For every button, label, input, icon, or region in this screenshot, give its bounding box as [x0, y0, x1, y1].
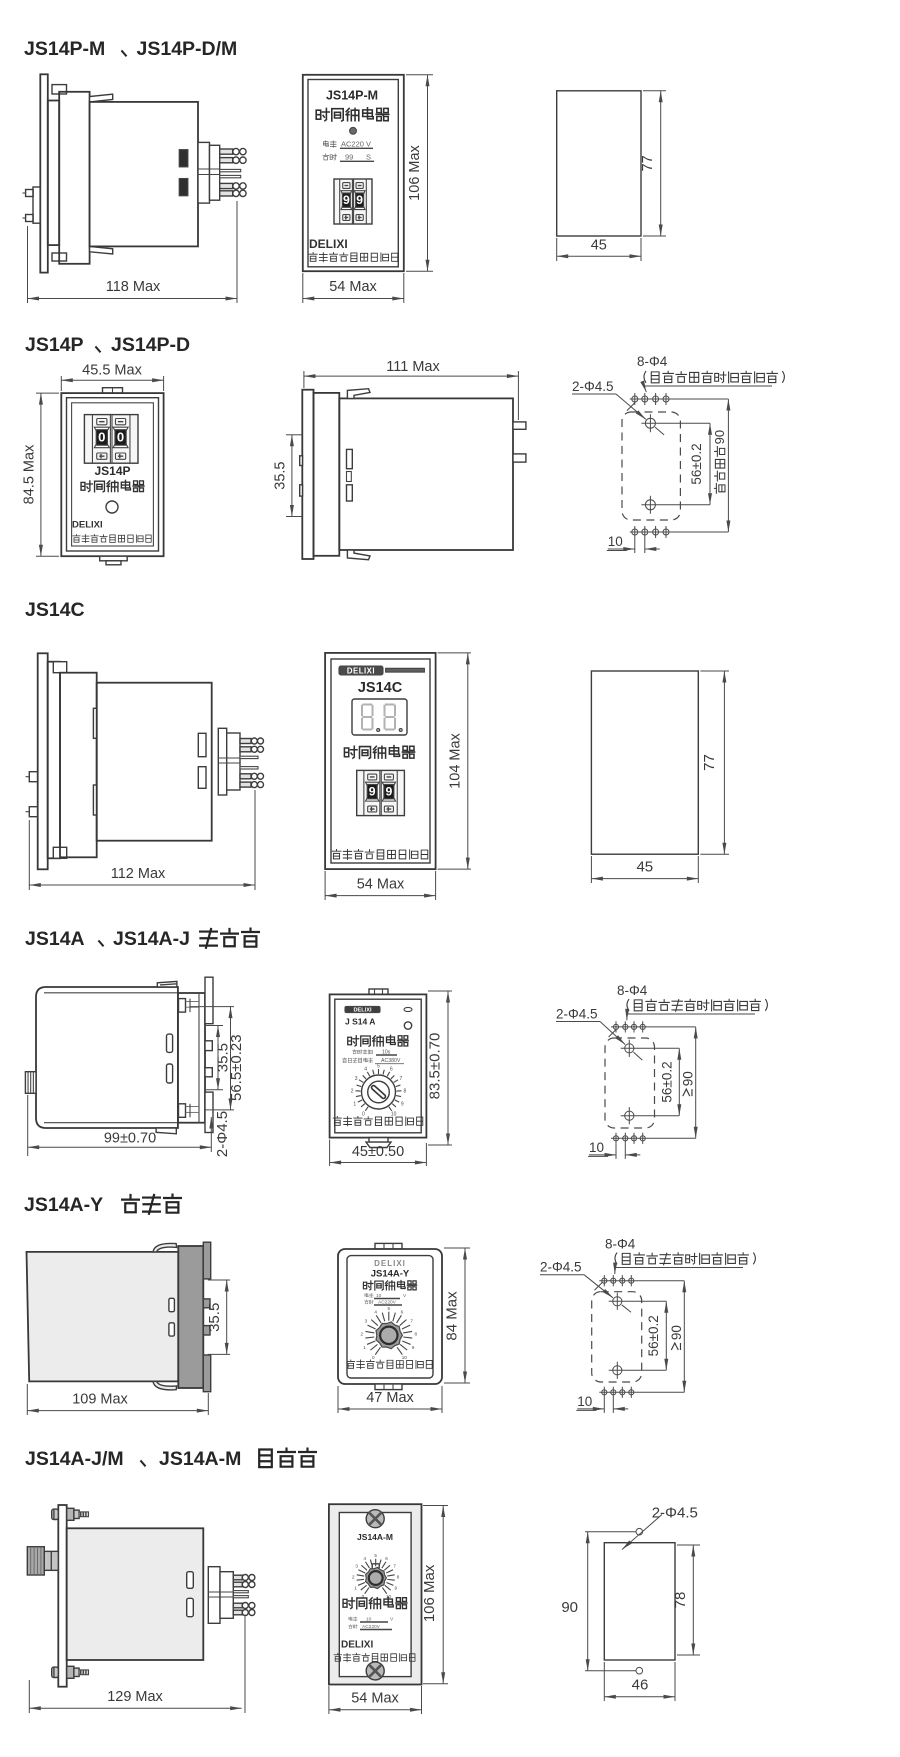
svg-text:8: 8: [403, 1088, 406, 1094]
svg-text:JS14P-D: JS14P-D: [111, 334, 190, 356]
svg-text:9: 9: [395, 1585, 398, 1590]
svg-text:DELIXI: DELIXI: [374, 1259, 406, 1268]
svg-text:6: 6: [401, 1309, 404, 1314]
svg-text:90: 90: [712, 430, 727, 444]
svg-text:10: 10: [589, 1140, 604, 1155]
svg-text:9: 9: [412, 1345, 415, 1350]
svg-text:4: 4: [374, 1309, 377, 1314]
svg-text:9: 9: [343, 193, 350, 207]
svg-text:3: 3: [365, 1319, 368, 1324]
svg-text:AC380V: AC380V: [381, 1058, 401, 1064]
svg-text:84.5 Max: 84.5 Max: [22, 444, 38, 504]
svg-text:2-Φ4.5: 2-Φ4.5: [214, 1111, 231, 1157]
svg-text:J S14 A: J S14 A: [345, 1017, 375, 1027]
svg-text:8: 8: [397, 1574, 400, 1579]
svg-text:8-Φ4: 8-Φ4: [617, 983, 648, 998]
svg-text:56±0.2: 56±0.2: [689, 443, 704, 484]
svg-text:2-Φ4.5: 2-Φ4.5: [556, 1007, 598, 1022]
svg-text:JS14A-M: JS14A-M: [357, 1532, 393, 1542]
svg-text:45.5 Max: 45.5 Max: [82, 363, 142, 379]
svg-text:47 Max: 47 Max: [366, 1390, 414, 1406]
svg-text:104 Max: 104 Max: [448, 732, 464, 788]
svg-text:35.5: 35.5: [206, 1303, 223, 1332]
svg-text:8: 8: [414, 1332, 417, 1337]
svg-text:5: 5: [388, 1306, 391, 1311]
svg-text:2-Φ4.5: 2-Φ4.5: [540, 1260, 582, 1275]
svg-text:DELIXI: DELIXI: [309, 237, 348, 251]
svg-text:129 Max: 129 Max: [107, 1689, 163, 1705]
svg-text:2: 2: [361, 1332, 364, 1337]
svg-text:JS14A-J: JS14A-J: [113, 928, 190, 950]
svg-text:JS14P-M: JS14P-M: [24, 38, 105, 60]
svg-text:0: 0: [98, 430, 105, 445]
svg-text:2: 2: [352, 1574, 355, 1579]
svg-text:56.5±0.23: 56.5±0.23: [228, 1034, 245, 1101]
svg-text:0: 0: [362, 1111, 365, 1117]
svg-text:1: 1: [363, 1345, 366, 1350]
svg-text:84 Max: 84 Max: [444, 1291, 461, 1341]
svg-text:DELIXI: DELIXI: [341, 1640, 373, 1651]
svg-text:77: 77: [701, 754, 718, 771]
svg-text:3: 3: [355, 1564, 358, 1569]
svg-text:106 Max: 106 Max: [407, 144, 423, 200]
svg-text:9: 9: [356, 193, 363, 207]
svg-text:JS14A: JS14A: [25, 928, 85, 950]
svg-text:DELIXI: DELIXI: [72, 520, 103, 531]
svg-text:6: 6: [385, 1556, 388, 1561]
svg-text:AC220 V: AC220 V: [341, 140, 371, 149]
svg-text:JS14P-M: JS14P-M: [326, 89, 378, 103]
svg-text:DELIXI: DELIXI: [353, 1008, 371, 1014]
svg-text:1: 1: [354, 1585, 357, 1590]
svg-text:10: 10: [608, 534, 623, 549]
svg-text:2: 2: [351, 1088, 354, 1094]
svg-text:S: S: [366, 153, 371, 162]
svg-text:0: 0: [372, 1355, 375, 1360]
svg-text:90: 90: [681, 1071, 696, 1086]
svg-text:46: 46: [632, 1677, 649, 1694]
svg-text:54 Max: 54 Max: [329, 279, 377, 295]
svg-text:112 Max: 112 Max: [111, 866, 166, 882]
svg-text:56±0.2: 56±0.2: [646, 1315, 661, 1356]
svg-text:99: 99: [345, 153, 353, 162]
svg-text:10: 10: [391, 1111, 397, 1117]
svg-text:7: 7: [410, 1319, 413, 1324]
svg-text:45: 45: [591, 238, 607, 254]
svg-text:5: 5: [377, 1063, 380, 1069]
svg-text:9: 9: [369, 784, 376, 798]
svg-text:JS14P: JS14P: [25, 334, 84, 356]
svg-text:3: 3: [355, 1076, 358, 1082]
svg-text:6: 6: [390, 1067, 393, 1073]
svg-text:JS14A-Y: JS14A-Y: [371, 1269, 410, 1280]
svg-text:56±0.2: 56±0.2: [659, 1061, 674, 1102]
svg-text:54 Max: 54 Max: [357, 877, 405, 893]
svg-text:118 Max: 118 Max: [106, 279, 161, 295]
svg-text:90: 90: [669, 1325, 684, 1340]
svg-text:9: 9: [386, 784, 393, 798]
svg-text:54 Max: 54 Max: [351, 1690, 399, 1706]
svg-text:106 Max: 106 Max: [421, 1564, 438, 1622]
svg-text:JS14P-D/M: JS14P-D/M: [137, 38, 238, 60]
svg-text:78: 78: [672, 1592, 689, 1609]
svg-text:9: 9: [401, 1101, 404, 1107]
svg-text:JS14A-J/M: JS14A-J/M: [25, 1448, 124, 1470]
svg-text:4: 4: [364, 1556, 367, 1561]
svg-text:2-Φ4.5: 2-Φ4.5: [572, 379, 614, 394]
svg-text:99±0.70: 99±0.70: [104, 1130, 156, 1146]
svg-text:4: 4: [364, 1067, 367, 1073]
svg-text:JS14P: JS14P: [94, 464, 130, 478]
svg-text:7: 7: [399, 1076, 402, 1082]
svg-text:10: 10: [402, 1355, 408, 1360]
svg-text:109 Max: 109 Max: [72, 1392, 128, 1408]
svg-text:1: 1: [353, 1101, 356, 1107]
svg-text:8-Φ4: 8-Φ4: [605, 1237, 636, 1252]
svg-text:DELIXI: DELIXI: [347, 667, 375, 676]
svg-text:7: 7: [393, 1564, 396, 1569]
svg-text:10: 10: [577, 1394, 592, 1409]
svg-text:JS14C: JS14C: [25, 599, 85, 621]
svg-text:45±0.50: 45±0.50: [352, 1144, 404, 1160]
svg-text:77: 77: [640, 155, 656, 171]
svg-text:JS14C: JS14C: [358, 680, 403, 696]
svg-text:5: 5: [374, 1553, 377, 1558]
svg-text:0: 0: [117, 430, 124, 445]
svg-text:JS14A-M: JS14A-M: [159, 1448, 241, 1470]
svg-text:2-Φ4.5: 2-Φ4.5: [652, 1505, 698, 1522]
svg-text:45: 45: [636, 859, 653, 876]
svg-text:83.5±0.70: 83.5±0.70: [427, 1033, 444, 1100]
svg-text:8-Φ4: 8-Φ4: [637, 354, 668, 369]
svg-text:JS14A-Y: JS14A-Y: [24, 1194, 103, 1216]
svg-text:35.5: 35.5: [273, 461, 289, 489]
svg-text:90: 90: [561, 1599, 578, 1616]
svg-text:111 Max: 111 Max: [386, 359, 440, 375]
